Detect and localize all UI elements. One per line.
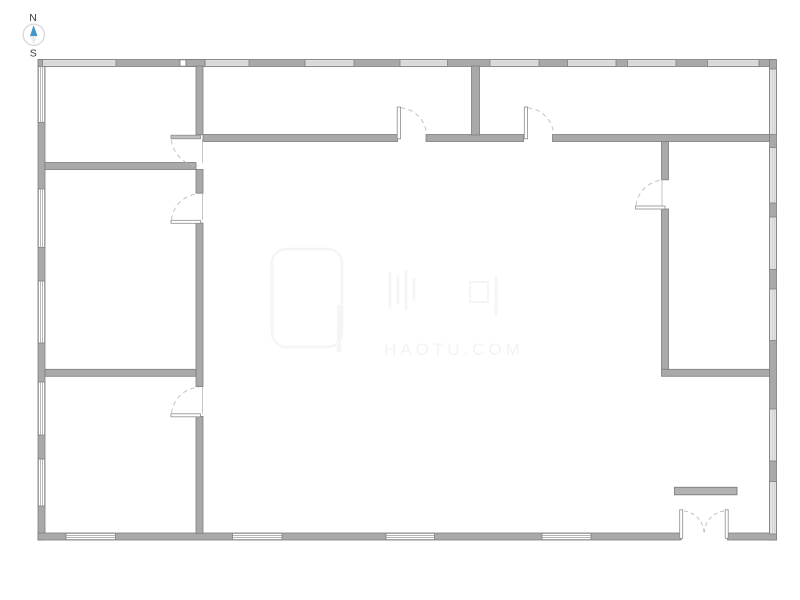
svg-text:N: N <box>29 12 37 24</box>
svg-text:HAOTU.COM: HAOTU.COM <box>384 340 524 359</box>
svg-text:S: S <box>30 47 37 59</box>
